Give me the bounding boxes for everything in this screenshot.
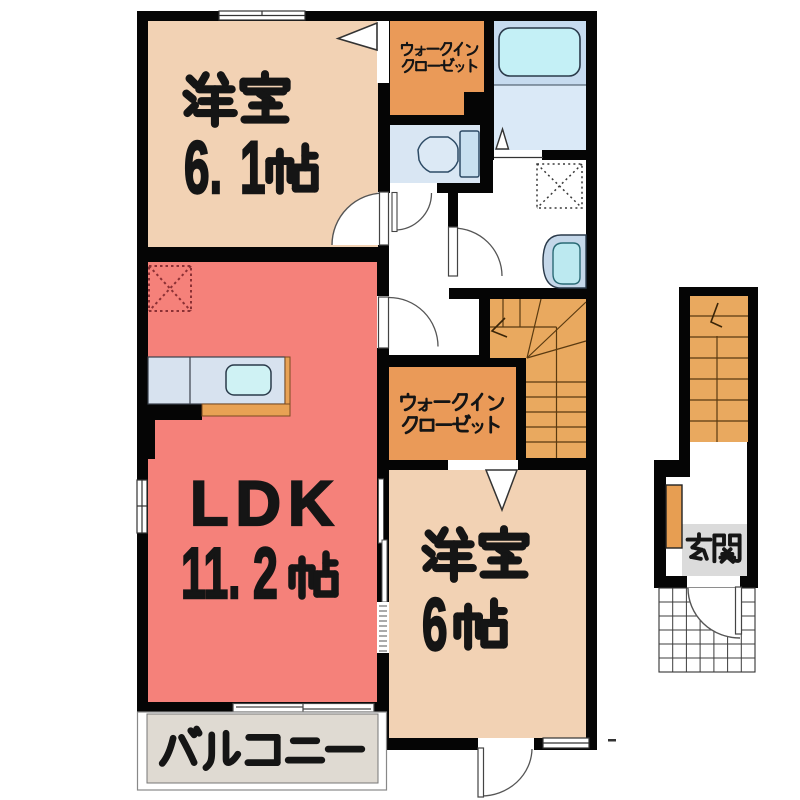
svg-text:11. 2: 11. 2 (181, 533, 278, 614)
svg-text:6: 6 (422, 584, 448, 667)
svg-text:1: 1 (240, 127, 266, 210)
svg-text:6.: 6. (184, 127, 222, 210)
svg-text:LDK: LDK (190, 469, 340, 539)
